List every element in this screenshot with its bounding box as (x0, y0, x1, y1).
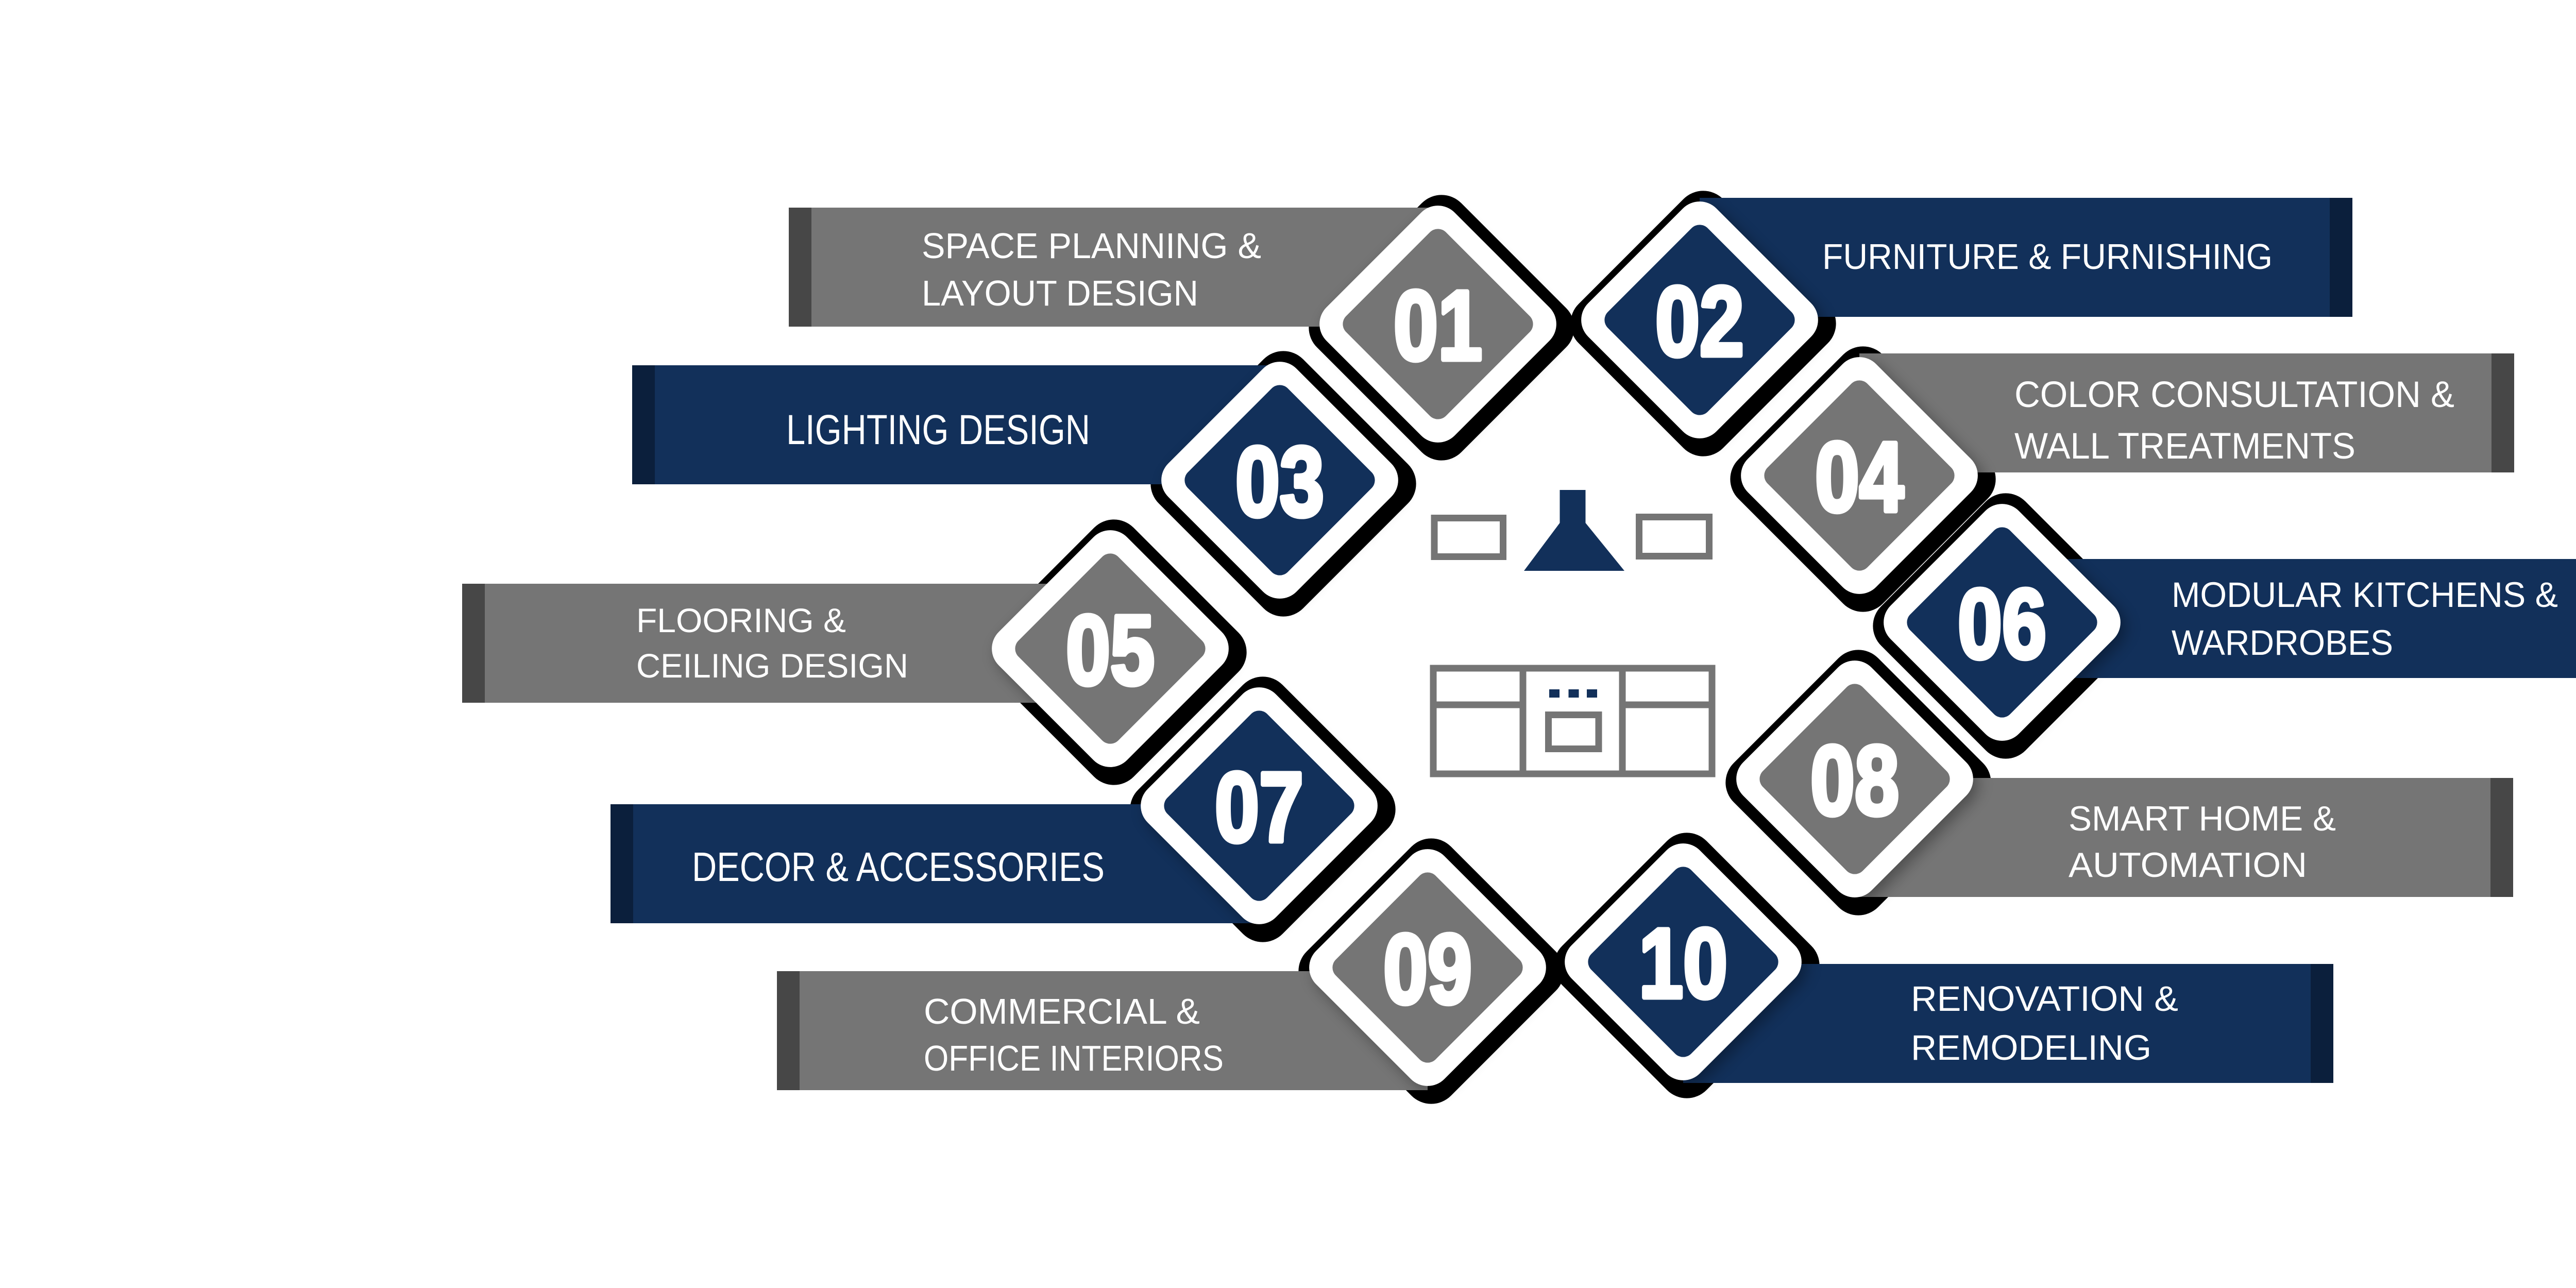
svg-text:SPACE PLANNING &: SPACE PLANNING & (922, 226, 1261, 266)
svg-text:05: 05 (1066, 595, 1155, 705)
svg-text:06: 06 (1958, 568, 2046, 679)
svg-text:10: 10 (1639, 908, 1727, 1019)
svg-text:OFFICE INTERIORS: OFFICE INTERIORS (924, 1038, 1224, 1078)
svg-text:COLOR CONSULTATION &: COLOR CONSULTATION & (2014, 375, 2454, 415)
svg-text:FLOORING &: FLOORING & (636, 601, 846, 639)
svg-text:07: 07 (1215, 752, 1303, 862)
svg-text:03: 03 (1235, 426, 1324, 537)
svg-text:DECOR & ACCESSORIES: DECOR & ACCESSORIES (692, 844, 1105, 890)
svg-text:LIGHTING DESIGN: LIGHTING DESIGN (786, 406, 1090, 453)
svg-text:SMART HOME &: SMART HOME & (2069, 799, 2336, 838)
svg-text:WARDROBES: WARDROBES (2172, 623, 2393, 663)
svg-text:02: 02 (1655, 266, 1744, 377)
svg-text:04: 04 (1815, 421, 1904, 532)
svg-text:COMMERCIAL &: COMMERCIAL & (924, 991, 1200, 1031)
svg-text:REMODELING: REMODELING (1911, 1028, 2151, 1067)
svg-text:08: 08 (1810, 725, 1899, 836)
svg-text:LAYOUT DESIGN: LAYOUT DESIGN (922, 273, 1198, 313)
svg-text:01: 01 (1394, 270, 1482, 381)
svg-text:MODULAR KITCHENS &: MODULAR KITCHENS & (2172, 575, 2558, 615)
svg-text:RENOVATION &: RENOVATION & (1911, 979, 2178, 1019)
svg-text:AUTOMATION: AUTOMATION (2069, 845, 2307, 885)
svg-text:09: 09 (1383, 913, 1472, 1024)
svg-text:WALL TREATMENTS: WALL TREATMENTS (2014, 426, 2355, 467)
svg-text:FURNITURE & FURNISHING: FURNITURE & FURNISHING (1822, 236, 2273, 277)
svg-text:CEILING DESIGN: CEILING DESIGN (636, 647, 908, 685)
